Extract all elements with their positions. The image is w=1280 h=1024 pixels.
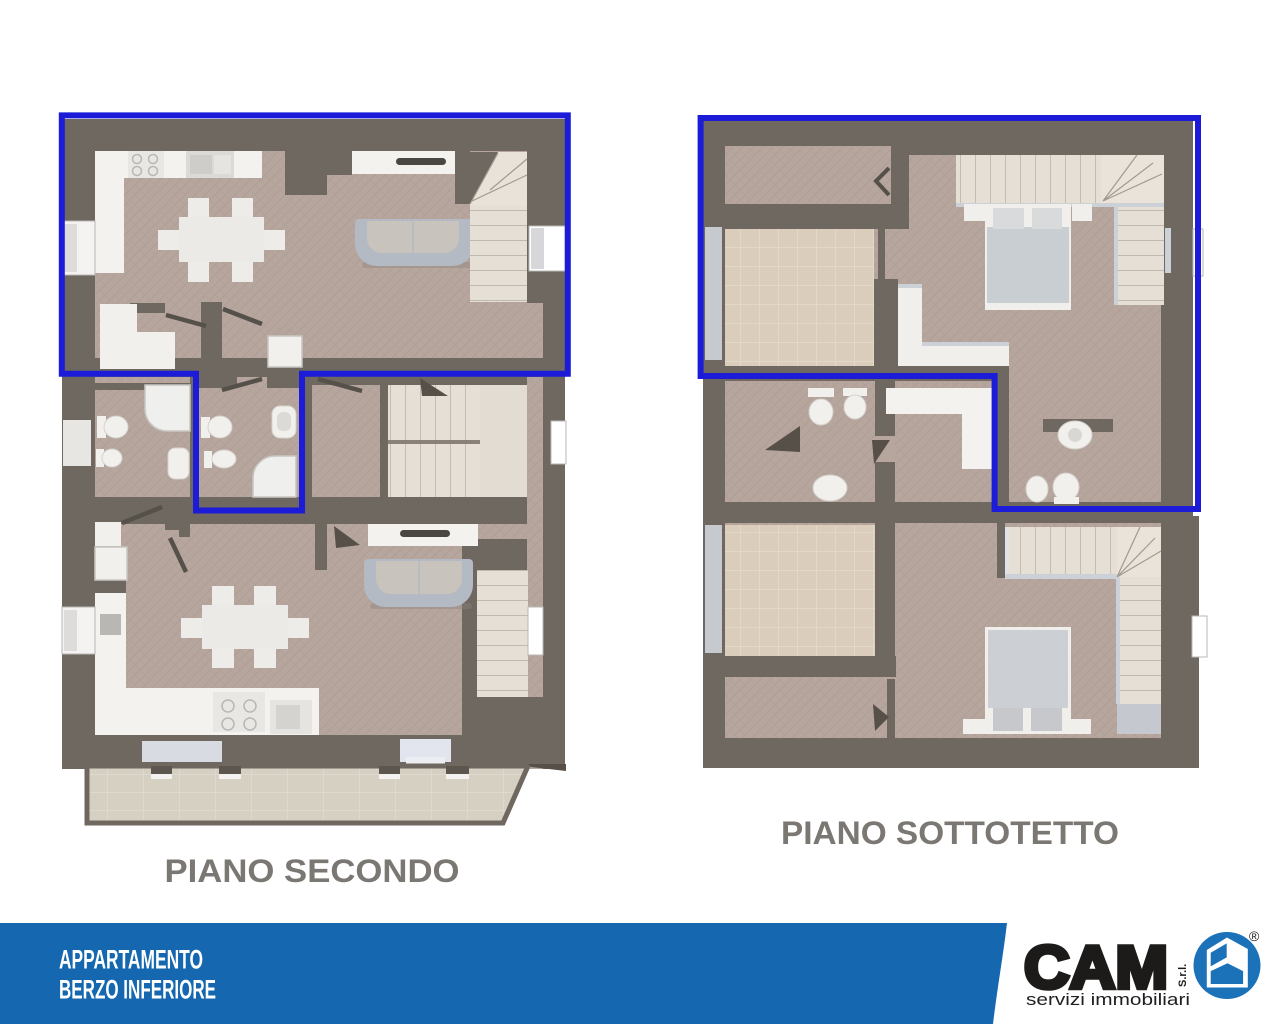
svg-text:PIANO SECONDO: PIANO SECONDO <box>165 853 460 889</box>
svg-text:S.r.l.: S.r.l. <box>1177 964 1189 987</box>
svg-text:servizi immobiliari: servizi immobiliari <box>1026 991 1190 1009</box>
svg-text:PIANO SOTTOTETTO: PIANO SOTTOTETTO <box>781 815 1119 851</box>
svg-text:®: ® <box>1249 928 1260 944</box>
svg-text:BERZO INFERIORE: BERZO INFERIORE <box>59 975 216 1005</box>
svg-text:APPARTAMENTO: APPARTAMENTO <box>59 945 203 975</box>
